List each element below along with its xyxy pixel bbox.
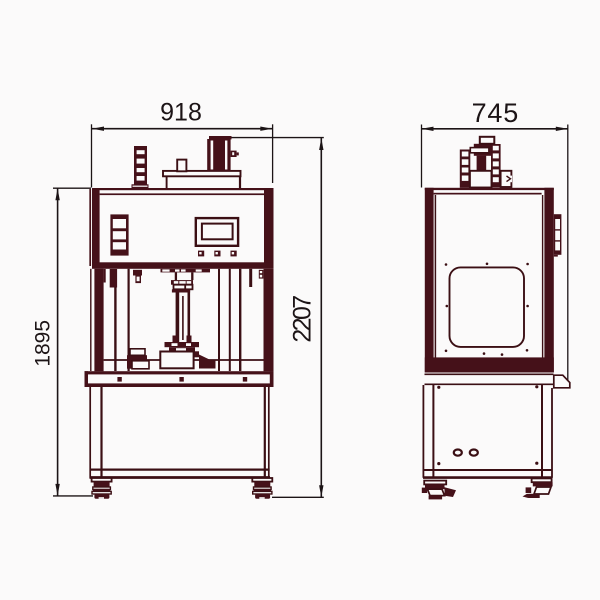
svg-text:918: 918 [160,99,202,127]
svg-text:745: 745 [472,98,519,128]
svg-text:2207: 2207 [288,296,316,343]
svg-text:1895: 1895 [32,320,55,367]
